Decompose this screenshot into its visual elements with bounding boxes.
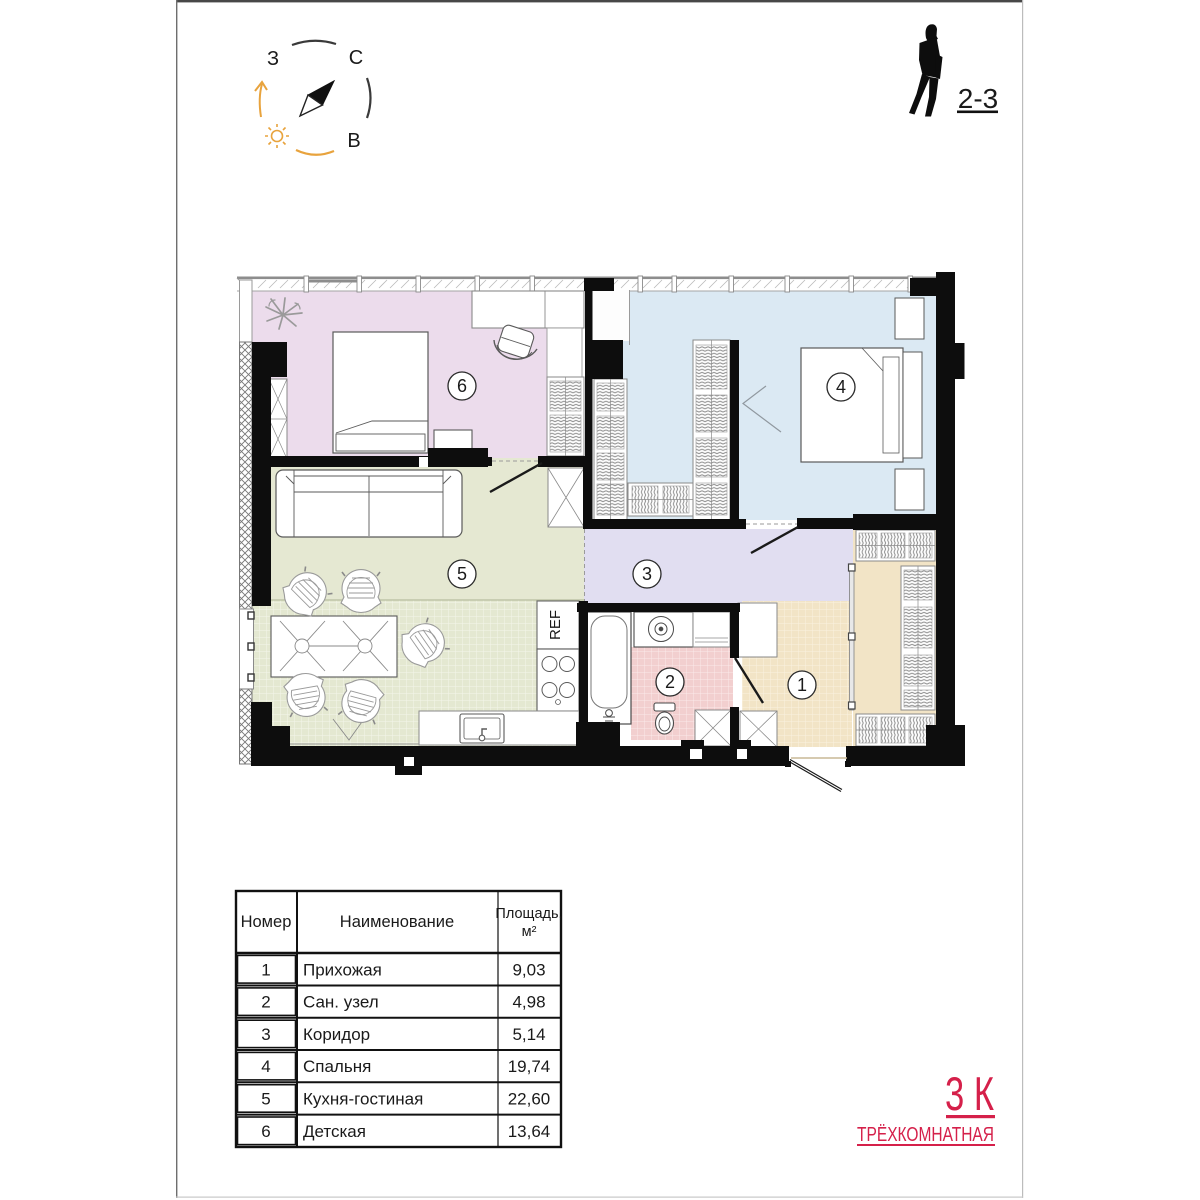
svg-text:2: 2 <box>261 993 270 1012</box>
svg-text:Детская: Детская <box>303 1122 366 1141</box>
svg-text:Кухня-гостиная: Кухня-гостиная <box>303 1089 423 1108</box>
svg-text:Спальня: Спальня <box>303 1057 371 1076</box>
svg-text:2-3: 2-3 <box>958 83 998 114</box>
svg-text:5: 5 <box>261 1089 270 1108</box>
svg-text:Коридор: Коридор <box>303 1025 370 1044</box>
svg-text:Наименование: Наименование <box>340 913 454 931</box>
svg-text:Площадь,: Площадь, <box>495 906 562 922</box>
svg-text:Сан. узел: Сан. узел <box>303 993 379 1012</box>
svg-text:2: 2 <box>665 672 675 692</box>
svg-text:REF: REF <box>547 610 564 640</box>
svg-text:5: 5 <box>457 564 467 584</box>
svg-text:Номер: Номер <box>241 913 292 931</box>
svg-text:6: 6 <box>261 1122 270 1141</box>
svg-text:3: 3 <box>642 564 652 584</box>
svg-text:4,98: 4,98 <box>512 993 545 1012</box>
svg-text:9,03: 9,03 <box>512 960 545 979</box>
svg-text:3: 3 <box>261 1025 270 1044</box>
svg-text:1: 1 <box>261 960 270 979</box>
svg-text:м²: м² <box>522 924 537 940</box>
svg-text:22,60: 22,60 <box>508 1089 551 1108</box>
svg-text:Прихожая: Прихожая <box>303 960 382 979</box>
svg-text:ТРЁХКОМНАТНАЯ: ТРЁХКОМНАТНАЯ <box>857 1124 994 1146</box>
svg-text:1: 1 <box>797 675 807 695</box>
svg-text:6: 6 <box>457 376 467 396</box>
svg-text:3 К: 3 К <box>945 1067 994 1120</box>
svg-text:В: В <box>347 130 360 152</box>
svg-text:С: С <box>349 47 363 69</box>
svg-text:4: 4 <box>261 1057 270 1076</box>
svg-text:13,64: 13,64 <box>508 1122 551 1141</box>
svg-text:19,74: 19,74 <box>508 1057 551 1076</box>
svg-text:5,14: 5,14 <box>512 1025 545 1044</box>
svg-text:З: З <box>267 48 279 70</box>
svg-text:4: 4 <box>836 377 846 397</box>
